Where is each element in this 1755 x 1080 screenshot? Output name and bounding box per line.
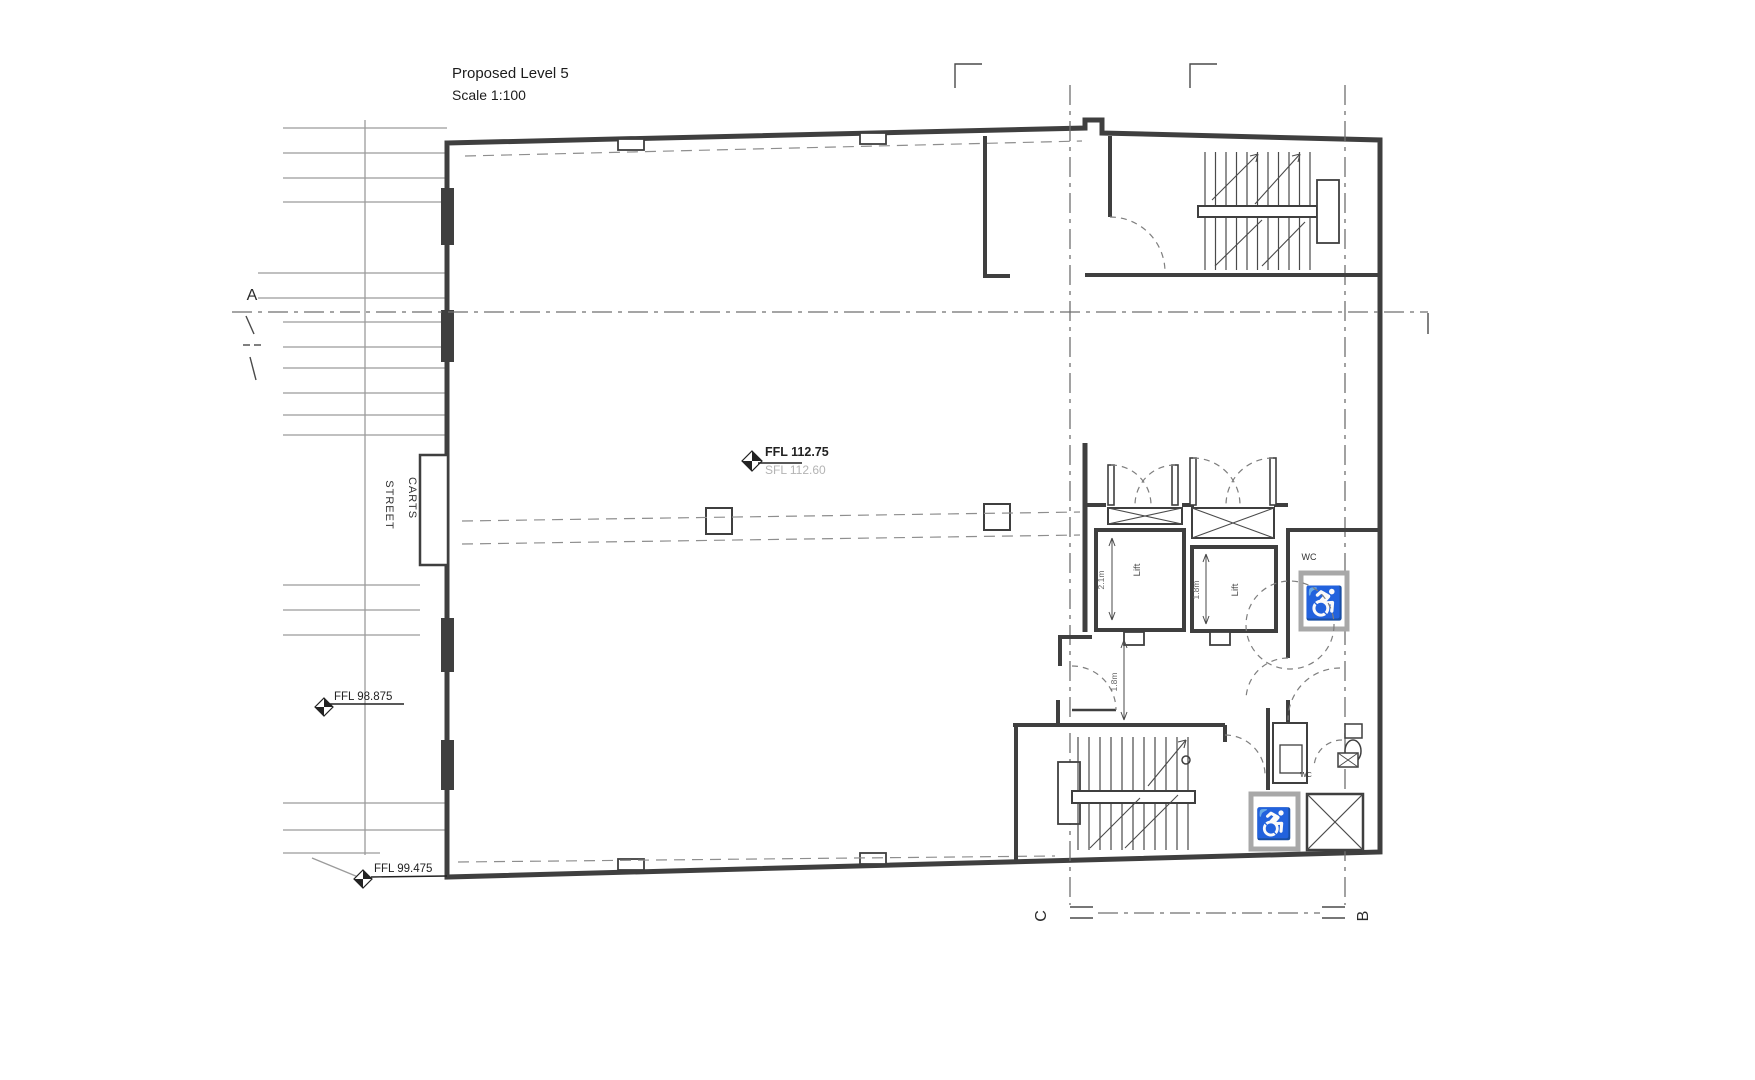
- shaft-box: [1307, 794, 1363, 850]
- column: [706, 508, 732, 534]
- lift-1: 2.1m Lift: [1096, 530, 1184, 630]
- lift2-label: Lift: [1230, 583, 1241, 596]
- lift-block: 2.1m Lift 1.8m Lift: [1085, 443, 1288, 645]
- double-door-left: [1108, 465, 1178, 505]
- wc-lower-area: WC ♿: [1251, 668, 1363, 850]
- sfl-main-label: SFL 112.60: [765, 463, 826, 477]
- wheelchair-icon: ♿: [1304, 585, 1344, 621]
- drawing-title: Proposed Level 5: [452, 65, 569, 82]
- stair-rail: [1317, 180, 1339, 243]
- grid-label-c: C: [1033, 910, 1050, 922]
- left-wall-pier: [441, 740, 454, 790]
- stair-core-top: [985, 136, 1378, 278]
- left-wall-pier: [441, 310, 454, 362]
- drawing-scale: Scale 1:100: [452, 87, 526, 103]
- toilet-cistern: [1345, 724, 1362, 738]
- stair-core-bottom: [1013, 700, 1265, 862]
- wall-stub: [1124, 632, 1144, 645]
- lift-2: 1.8m Lift: [1191, 547, 1276, 631]
- shaft-box: [1192, 508, 1274, 538]
- ffl-street-lower-label: FFL 99.475: [374, 863, 432, 875]
- left-wall-pier: [441, 188, 454, 245]
- floor-plan-canvas: A C B: [0, 0, 1755, 1080]
- level-marker: FFL 98.875: [315, 691, 404, 716]
- street-name-line1: CARTS: [406, 477, 418, 519]
- lift1-label: Lift: [1132, 563, 1143, 576]
- lift1-dim-label: 2.1m: [1096, 571, 1106, 590]
- door-swing-arc: [1288, 668, 1340, 720]
- door-swing-arc: [1225, 735, 1265, 775]
- wall-stub: [1210, 632, 1230, 645]
- small-duct-box: [1338, 753, 1358, 767]
- ffl-main-label: FFL 112.75: [765, 445, 829, 459]
- street-bay: [420, 455, 448, 565]
- shaft-box: [1108, 508, 1182, 524]
- left-wall-pier: [441, 618, 454, 672]
- level-marker: FFL 112.75 SFL 112.60: [742, 445, 829, 477]
- corridor: 1.8m: [1058, 632, 1288, 725]
- wc-upper-label: WC: [1302, 552, 1317, 562]
- corridor-dim-label: 1.8m: [1109, 673, 1119, 692]
- double-door-right: [1190, 458, 1276, 505]
- wc-lower-label: WC: [1300, 772, 1312, 779]
- door-swing-arc: [1246, 658, 1288, 700]
- floor-plan-page: A C B: [0, 0, 1755, 1080]
- level-marker: FFL 99.475: [354, 863, 447, 888]
- grid-label-a: A: [247, 287, 258, 304]
- column: [618, 139, 644, 150]
- column: [860, 133, 886, 144]
- stair-landing: [1198, 206, 1317, 217]
- door-swing-arc: [1110, 217, 1165, 272]
- grid-label-b: B: [1355, 911, 1372, 922]
- column: [984, 504, 1010, 530]
- title-block: Proposed Level 5 Scale 1:100: [452, 65, 569, 103]
- wheelchair-icon: ♿: [1255, 806, 1292, 841]
- sink: [1280, 745, 1302, 773]
- stair-newel: [1182, 756, 1190, 764]
- street-name-line2: STREET: [383, 480, 395, 529]
- street-name: CARTS STREET: [383, 477, 418, 530]
- ffl-street-upper-label: FFL 98.875: [334, 691, 392, 703]
- lift2-dim-label: 1.8m: [1191, 581, 1201, 600]
